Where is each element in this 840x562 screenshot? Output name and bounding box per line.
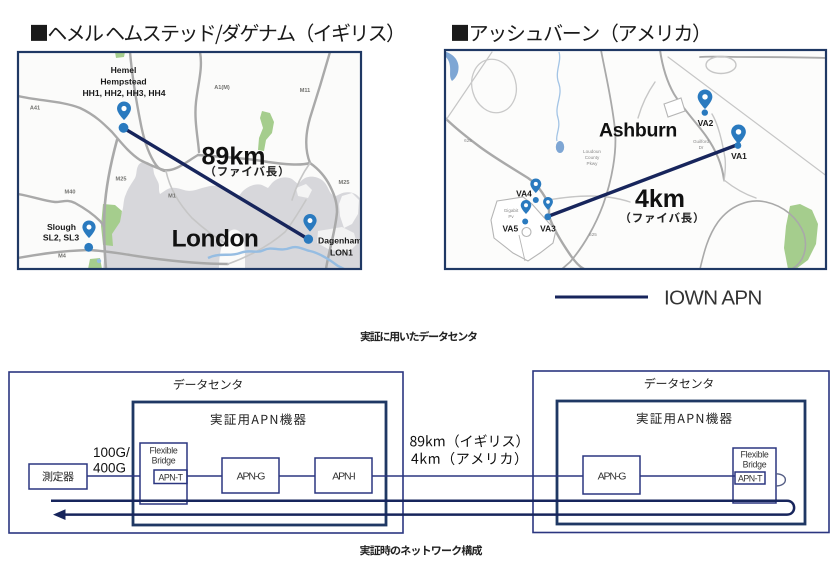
- svg-text:APN-I: APN-I: [332, 471, 355, 483]
- svg-text:VA4: VA4: [516, 188, 532, 198]
- svg-text:VA3: VA3: [540, 223, 556, 233]
- svg-text:London: London: [172, 226, 259, 253]
- svg-text:A41: A41: [30, 106, 40, 112]
- svg-text:APN-T: APN-T: [738, 474, 763, 484]
- svg-text:M40: M40: [65, 190, 76, 196]
- svg-text:625: 625: [589, 232, 597, 237]
- svg-text:IOWN APN: IOWN APN: [664, 287, 762, 310]
- svg-text:Hempstead: Hempstead: [100, 77, 146, 87]
- svg-text:400G: 400G: [93, 461, 126, 476]
- svg-text:A1(M): A1(M): [214, 85, 230, 91]
- svg-text:Pv: Pv: [508, 214, 514, 219]
- svg-text:Pkwy: Pkwy: [587, 161, 599, 166]
- svg-text:Dr: Dr: [699, 145, 704, 150]
- svg-text:89km: 89km: [202, 143, 266, 171]
- svg-text:Bridge: Bridge: [152, 456, 176, 466]
- svg-text:M4: M4: [58, 254, 67, 260]
- svg-text:M25: M25: [339, 180, 350, 186]
- svg-text:LON1: LON1: [330, 248, 353, 258]
- svg-text:VA1: VA1: [731, 151, 747, 161]
- svg-text:Flexible: Flexible: [150, 446, 178, 456]
- svg-text:Dagenham: Dagenham: [318, 236, 362, 246]
- svg-text:M1: M1: [168, 194, 176, 200]
- svg-text:Hemel: Hemel: [111, 65, 137, 75]
- svg-text:M11: M11: [300, 88, 311, 94]
- svg-text:Bridge: Bridge: [743, 460, 767, 470]
- svg-text:SL2, SL3: SL2, SL3: [43, 233, 80, 243]
- svg-text:HH1, HH2, HH3, HH4: HH1, HH2, HH3, HH4: [82, 88, 165, 98]
- svg-text:M25: M25: [116, 177, 127, 183]
- svg-text:APN-G: APN-G: [598, 471, 627, 483]
- svg-text:Loudoun: Loudoun: [583, 149, 601, 154]
- svg-text:VA2: VA2: [698, 118, 714, 128]
- svg-text:APN-T: APN-T: [159, 473, 184, 483]
- svg-text:Ashburn: Ashburn: [599, 120, 677, 142]
- svg-text:County: County: [585, 155, 600, 160]
- svg-text:Guilford: Guilford: [693, 139, 710, 144]
- svg-text:APN-G: APN-G: [237, 471, 266, 483]
- svg-text:Flexible: Flexible: [741, 450, 769, 460]
- svg-text:4km: 4km: [635, 185, 685, 213]
- svg-text:625: 625: [464, 138, 472, 143]
- svg-text:Gigabit: Gigabit: [504, 208, 519, 213]
- svg-text:100G/: 100G/: [93, 445, 130, 460]
- svg-text:Slough: Slough: [47, 222, 76, 232]
- svg-text:VA5: VA5: [502, 223, 518, 233]
